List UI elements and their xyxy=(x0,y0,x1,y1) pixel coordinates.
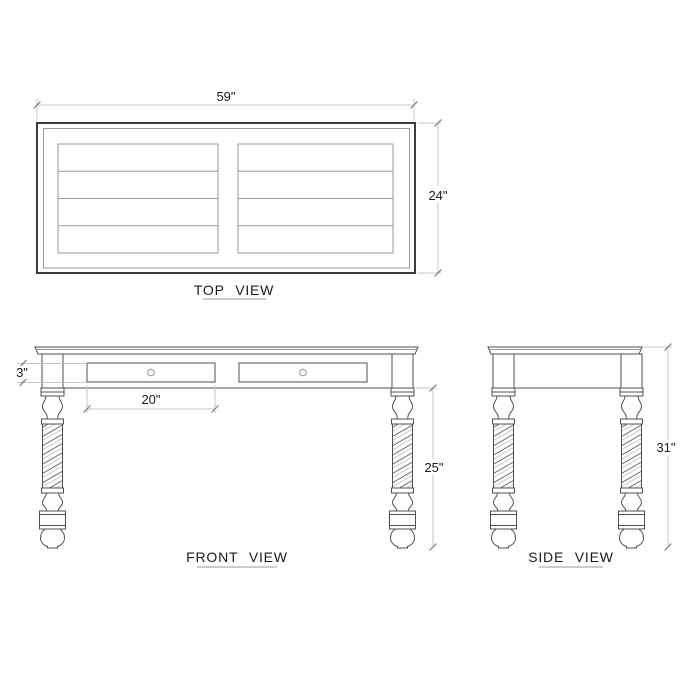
top-view-label: TOP VIEW xyxy=(194,282,274,298)
left-drawer-knob xyxy=(148,369,155,376)
front-view-drawing: 3" 20" 25" FRONT VIEW xyxy=(13,347,448,567)
top-view-drawing: 59" 24" TOP VIEW xyxy=(34,89,452,299)
front-leg-height-dimension: 25" xyxy=(416,385,448,551)
front-right-leg xyxy=(390,354,416,548)
dim-label-31: 31" xyxy=(656,440,675,455)
dim-label-59: 59" xyxy=(216,89,235,104)
right-drawer xyxy=(239,363,367,382)
right-drawer-knob xyxy=(300,369,307,376)
side-view-label: SIDE VIEW xyxy=(528,549,614,565)
front-left-leg xyxy=(40,354,66,548)
side-right-leg xyxy=(619,354,645,548)
tabletop-right-plank-panel xyxy=(238,144,393,253)
blueprint-canvas: 59" 24" TOP VIEW xyxy=(0,0,700,700)
side-view-drawing: 31" SIDE VIEW xyxy=(488,344,682,567)
front-tabletop xyxy=(35,347,418,354)
top-view-depth-dimension: 24" xyxy=(417,120,452,277)
dim-label-25: 25" xyxy=(424,460,443,475)
technical-drawing-svg: 59" 24" TOP VIEW xyxy=(0,0,700,700)
front-drawer-width-dimension: 20" xyxy=(84,385,219,413)
dim-label-24: 24" xyxy=(428,188,447,203)
dim-label-3: 3" xyxy=(16,365,28,380)
top-view-width-dimension: 59" xyxy=(34,89,418,121)
side-left-leg xyxy=(491,354,517,548)
left-drawer xyxy=(87,363,215,382)
side-tabletop xyxy=(488,347,642,354)
dim-label-20: 20" xyxy=(141,392,160,407)
front-view-label: FRONT VIEW xyxy=(186,549,288,565)
tabletop-left-plank-panel xyxy=(58,144,218,253)
side-total-height-dimension: 31" xyxy=(644,344,682,551)
